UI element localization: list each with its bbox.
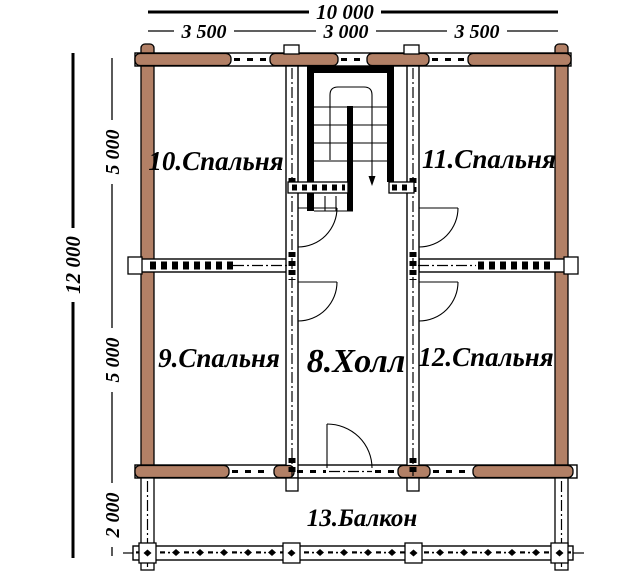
- dimension-left-segment-3: 2 000: [102, 493, 124, 539]
- dimension-left-segment-2: 5 000: [102, 338, 124, 383]
- balcony-railing-pattern: [135, 548, 571, 559]
- bottom-log: [135, 466, 229, 478]
- doors: [298, 208, 458, 468]
- partition-end-cap-right: [564, 257, 578, 274]
- floor-plan-page: 10 000 3 500 3 000 3 500 12 000 5 000 5 …: [0, 0, 624, 587]
- dimension-left: 12 000 5 000 5 000 2 000: [61, 53, 124, 558]
- top-log: [367, 54, 429, 66]
- room-label-balcony: 13.Балкон: [307, 505, 418, 532]
- door-arc-bedroom-9: [298, 282, 337, 321]
- top-log: [468, 54, 571, 66]
- room-label-hall: 8.Холл: [307, 343, 406, 380]
- stair-wall-top: [307, 66, 394, 73]
- dimension-top-segment-2: 3 000: [323, 21, 369, 43]
- stair-wall-right: [387, 66, 394, 182]
- stair-divider: [347, 106, 353, 211]
- dimension-left-overall: 12 000: [61, 236, 85, 294]
- room-label-bedroom-9: 9.Спальня: [158, 343, 280, 373]
- interior-wall-stub: [407, 478, 419, 491]
- top-log: [135, 54, 231, 66]
- door-arc-hall-upper-left: [298, 208, 337, 247]
- interior-wall-cap: [404, 45, 419, 54]
- door-arc-bedroom-11: [419, 208, 458, 247]
- room-label-bedroom-10: 10.Спальня: [148, 146, 283, 176]
- top-log: [270, 54, 338, 66]
- room-label-bedroom-11: 11.Спальня: [422, 144, 556, 174]
- staircase: [288, 66, 414, 211]
- dimension-top-segment-1: 3 500: [181, 21, 227, 43]
- interior-wall-stub: [286, 478, 298, 491]
- dimension-top-segment-3: 3 500: [454, 21, 500, 43]
- door-arc-bedroom-12: [419, 282, 458, 321]
- partition-end-cap-left: [128, 257, 142, 274]
- bottom-log: [473, 466, 573, 478]
- interior-wall-cap: [284, 45, 299, 54]
- door-arc-balcony: [327, 424, 372, 468]
- stair-direction-arrow: [369, 176, 376, 186]
- dimension-left-segment-1: 5 000: [102, 130, 124, 175]
- floor-plan-drawing: 10 000 3 500 3 000 3 500 12 000 5 000 5 …: [0, 0, 624, 587]
- room-label-bedroom-12: 12.Спальня: [418, 342, 553, 372]
- dimension-top: 10 000 3 500 3 000 3 500: [148, 0, 558, 43]
